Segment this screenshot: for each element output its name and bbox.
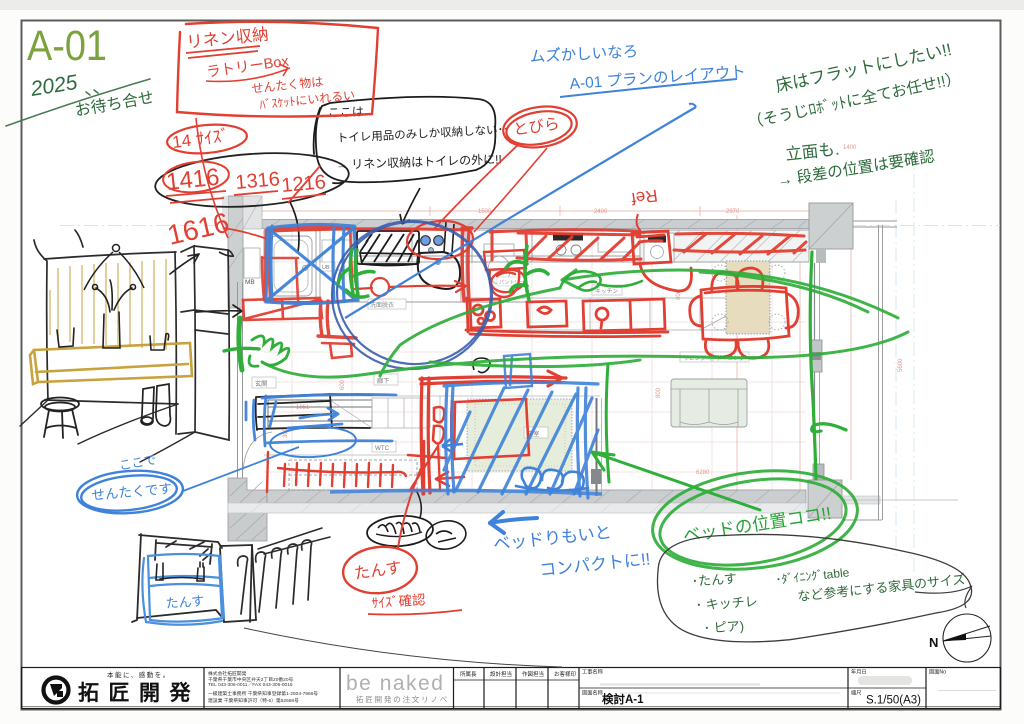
svg-text:一級建築士事務所 千葉県知事登録第1-2504-7966号: 一級建築士事務所 千葉県知事登録第1-2504-7966号 [208, 690, 318, 697]
svg-text:工事名称: 工事名称 [582, 668, 603, 676]
svg-text:所属長: 所属長 [460, 670, 477, 678]
svg-text:千葉県千葉市中央区弁天2丁目20番20号: 千葉県千葉市中央区弁天2丁目20番20号 [208, 676, 293, 683]
svg-text:･ ピア): ･ ピア) [703, 618, 744, 636]
svg-text:5600: 5600 [898, 358, 904, 372]
svg-text:縮尺: 縮尺 [851, 689, 861, 697]
svg-text:1416: 1416 [165, 164, 221, 196]
svg-text:･たんす: ･たんす [691, 571, 737, 589]
svg-text:検討A-1: 検討A-1 [602, 692, 644, 706]
svg-text:UB: UB [322, 265, 330, 271]
svg-text:600: 600 [340, 379, 346, 390]
svg-text:図面名称: 図面名称 [582, 689, 603, 697]
svg-text:WTC: WTC [375, 445, 390, 452]
svg-text:設計担当: 設計担当 [490, 670, 512, 678]
svg-text:玄関: 玄関 [255, 380, 267, 388]
svg-text:1400: 1400 [843, 145, 857, 151]
svg-text:たんす: たんす [165, 593, 205, 611]
svg-text:S.1/50(A3): S.1/50(A3) [866, 695, 921, 707]
svg-text:拓匠開発: 拓匠開発 [78, 682, 200, 705]
svg-text:1316: 1316 [235, 168, 281, 194]
svg-text:年月日: 年月日 [851, 668, 867, 676]
svg-text:拓匠開発の注文リノベ: 拓匠開発の注文リノベ [356, 694, 449, 704]
svg-text:2970: 2970 [726, 209, 740, 215]
svg-text:お客様印: お客様印 [554, 670, 577, 678]
svg-text:N: N [929, 635, 938, 650]
svg-text:ここは: ここは [328, 105, 364, 120]
svg-text:株式会社拓匠開発: 株式会社拓匠開発 [208, 670, 247, 677]
svg-text:1051: 1051 [296, 405, 310, 411]
svg-text:本能に、感動を。: 本能に、感動を。 [107, 670, 171, 679]
svg-text:キッチン: キッチン [595, 288, 618, 295]
svg-text:建設業 千葉県知事許可（特-6）第52558号: 建設業 千葉県知事許可（特-6）第52558号 [208, 697, 299, 704]
svg-text:TEL 043-306-0011／FAX 043-306-0: TEL 043-306-0011／FAX 043-306-0015 [208, 682, 293, 688]
svg-text:作図担当: 作図担当 [522, 670, 544, 678]
svg-text:800: 800 [656, 387, 662, 398]
svg-text:図面No: 図面No [929, 669, 946, 676]
svg-text:Ref: Ref [630, 186, 659, 209]
svg-text:2400: 2400 [594, 209, 608, 215]
svg-text:MB: MB [245, 279, 255, 286]
svg-text:6280: 6280 [696, 470, 710, 476]
svg-text:洗面脱衣: 洗面脱衣 [370, 301, 394, 309]
svg-text:廊下: 廊下 [377, 377, 389, 385]
svg-text:be naked: be naked [346, 672, 444, 695]
svg-text:A-01: A-01 [27, 22, 107, 70]
